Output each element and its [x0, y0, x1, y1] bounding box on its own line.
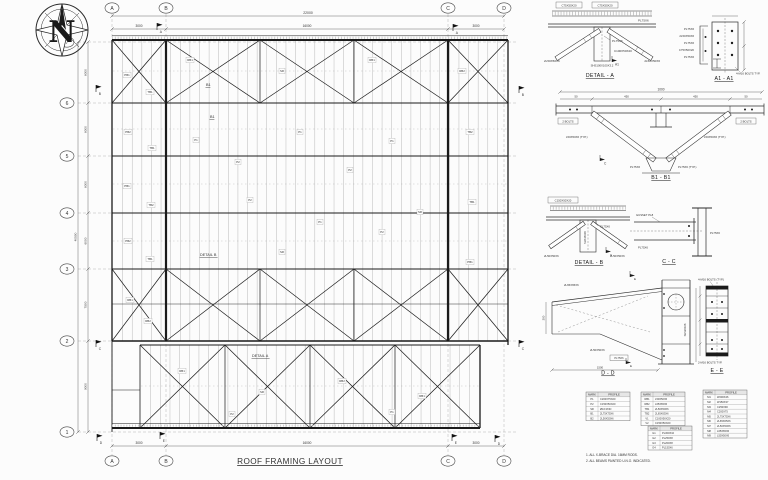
svg-text:RB2: RB2	[644, 402, 650, 406]
detail-cc-caption: C - C	[662, 259, 676, 265]
svg-text:3000: 3000	[472, 24, 479, 28]
svg-text:MARK: MARK	[643, 392, 651, 396]
svg-text:SR: SR	[590, 407, 594, 411]
detail-ee: 4-M16 BOLTS (TYP.) 2-M16 BOLTS TYP. E - …	[698, 278, 728, 375]
svg-text:A: A	[160, 30, 163, 34]
svg-text:P1: P1	[298, 130, 302, 134]
svg-text:RB2: RB2	[339, 379, 345, 383]
svg-text:3000: 3000	[135, 24, 142, 28]
svg-text:SR: SR	[260, 390, 264, 394]
detail-dd-label: 2L50X50X6	[590, 348, 605, 352]
svg-text:D: D	[502, 6, 506, 12]
detail-cc-label: PL75X6	[638, 246, 648, 250]
svg-text:C250X90: C250X90	[717, 405, 728, 409]
svg-text:2L50X50X6: 2L50X50X6	[600, 416, 614, 420]
detail-dd-label: 2L65X65X6	[564, 283, 579, 287]
section-marker: E	[630, 364, 632, 368]
svg-text:C150X50X20: C150X50X20	[600, 402, 616, 406]
detail-dd-label: SHS200X6	[683, 323, 687, 336]
svg-text:P2: P2	[236, 160, 240, 164]
detail-b-label: 2L50X50X6	[610, 254, 625, 258]
detail-a-label: 2L50X50X6	[644, 59, 660, 63]
svg-text:P1: P1	[390, 139, 394, 143]
svg-text:16000: 16000	[303, 24, 312, 28]
svg-text:6000: 6000	[83, 69, 87, 76]
general-note-2: 2. ALL BEAMS PAINTED U.N.O. INDICATED.	[586, 459, 651, 463]
svg-text:SR: SR	[280, 69, 284, 73]
detail-b1-label: PL75X6	[630, 165, 640, 169]
svg-text:DETAIL B: DETAIL B	[200, 253, 217, 257]
svg-text:W150X37: W150X37	[717, 400, 729, 404]
detail-cc-label: PL75X6	[710, 231, 720, 235]
svg-text:C: C	[446, 6, 450, 12]
svg-text:B: B	[99, 92, 102, 96]
svg-text:P1: P1	[194, 138, 198, 142]
svg-text:P2: P2	[590, 402, 594, 406]
member-schedule-tables: MARKPROFILEP1C200X75X20P2C150X50X20SRØ16…	[586, 390, 747, 450]
svg-text:PROFILE: PROFILE	[725, 390, 737, 394]
detail-a1-label: PL75X6	[684, 55, 694, 59]
detail-b: C150X50X20 2L50X50X6 2L50X50X6 PL75X6 SH…	[544, 197, 630, 266]
svg-text:3000: 3000	[135, 441, 142, 445]
svg-text:40500: 40500	[73, 232, 77, 241]
svg-text:A: A	[456, 31, 459, 35]
detail-b-label: SHS150X6	[583, 231, 587, 244]
svg-text:22000: 22000	[303, 11, 313, 15]
svg-text:2L50X50X6: 2L50X50X6	[717, 424, 731, 428]
svg-text:M4: M4	[707, 410, 711, 414]
detail-b-label: 2L50X50X6	[544, 254, 559, 258]
detail-a-label: C75X50X20	[597, 4, 613, 8]
svg-text:E: E	[163, 439, 166, 443]
detail-dd-label: PL75X6	[614, 356, 624, 360]
svg-text:M5: M5	[707, 414, 711, 418]
svg-text:2L65X65X6: 2L65X65X6	[717, 419, 731, 423]
svg-text:P2: P2	[248, 198, 252, 202]
detail-b1-label: L50X50X6 (TYP.)	[704, 135, 726, 139]
general-note-1: 1. ALL X-BRACE DIA. 16MM RODS.	[586, 453, 638, 457]
detail-b1: 1000 50 450 450 50	[556, 87, 764, 181]
detail-a1-caption: A1 - A1	[714, 76, 733, 82]
svg-text:MARK: MARK	[705, 390, 713, 394]
svg-text:B1: B1	[210, 115, 215, 119]
svg-text:PL300X10: PL300X10	[662, 431, 675, 435]
svg-text:6000: 6000	[83, 126, 87, 133]
detail-b1-label: 2 BOLTS	[740, 119, 751, 123]
svg-text:2L75X75X6: 2L75X75X6	[717, 414, 731, 418]
svg-text:D: D	[502, 459, 506, 465]
svg-text:6000: 6000	[83, 181, 87, 188]
detail-ee-note: 4-M16 BOLTS (TYP.)	[698, 278, 724, 282]
svg-text:V2: V2	[645, 421, 649, 425]
svg-text:RB2: RB2	[459, 69, 465, 73]
svg-text:B2: B2	[590, 416, 594, 420]
detail-b1-dim: 50	[744, 94, 748, 98]
svg-text:G4: G4	[652, 446, 656, 450]
svg-text:E: E	[455, 441, 458, 445]
svg-text:PL250X8: PL250X8	[662, 436, 673, 440]
svg-text:B1: B1	[206, 83, 211, 87]
svg-text:TB1: TB1	[149, 146, 155, 150]
detail-a-label: C100X50X20	[614, 49, 632, 53]
svg-text:RB1: RB1	[419, 394, 425, 398]
svg-text:V1: V1	[645, 416, 649, 420]
svg-text:P2: P2	[348, 168, 352, 172]
svg-text:M2: M2	[707, 400, 711, 404]
drawing-sheet: AABBCCDD76543212200030001600030003000160…	[0, 0, 768, 480]
svg-text:2: 2	[66, 339, 69, 345]
svg-text:G2: G2	[652, 436, 656, 440]
detail-a1-note: 4-M16 BOLTS TYP.	[736, 72, 760, 76]
svg-text:PL200X8: PL200X8	[662, 441, 673, 445]
svg-text:PB1: PB1	[124, 184, 130, 188]
section-marker: C	[604, 162, 607, 166]
svg-text:PB1: PB1	[467, 260, 473, 264]
detail-b1-dim: 50	[574, 94, 578, 98]
svg-text:RB2: RB2	[145, 319, 151, 323]
detail-a1-label: PL75X6	[684, 41, 694, 45]
detail-a1-label: PL75X6	[684, 27, 694, 31]
detail-a1: PL75X6 2L50X50X6 PL75X6 C75X50X20 PL75X6…	[679, 16, 761, 82]
north-arrow-compass: N	[36, 4, 88, 56]
detail-ee-caption: E - E	[710, 368, 723, 374]
detail-b1-label: L50X50X6 (TYP.)	[566, 135, 588, 139]
svg-text:B1: B1	[590, 412, 594, 416]
svg-text:TB1: TB1	[645, 407, 650, 411]
svg-text:PB1: PB1	[124, 73, 130, 77]
svg-text:RB1: RB1	[369, 58, 375, 62]
section-marker: A1	[615, 63, 619, 67]
svg-text:PL150X6: PL150X6	[662, 446, 673, 450]
detail-b1-caption: B1 - B1	[651, 175, 670, 181]
svg-text:L65X65X6: L65X65X6	[717, 429, 730, 433]
svg-text:4: 4	[66, 211, 69, 217]
svg-text:TB2: TB2	[467, 130, 473, 134]
svg-text:C200X75X20: C200X75X20	[600, 397, 616, 401]
svg-text:3000: 3000	[472, 441, 479, 445]
detail-a-label: PL75X6	[612, 39, 623, 43]
svg-text:5: 5	[66, 154, 69, 160]
svg-text:L65X65X6: L65X65X6	[655, 402, 668, 406]
svg-text:C150X50X20: C150X50X20	[655, 421, 671, 425]
detail-cc-label: GUSSET PL8	[636, 213, 654, 217]
detail-b1-dim: 1000	[657, 87, 664, 91]
detail-cc: GUSSET PL8 PL75X6 PL75X6 C - C	[630, 208, 720, 265]
svg-text:W200X46: W200X46	[717, 395, 729, 399]
svg-text:RB1: RB1	[127, 298, 133, 302]
detail-b-label: C150X50X20	[555, 198, 572, 202]
detail-b1-dim: 450	[624, 94, 629, 98]
svg-text:M6: M6	[707, 419, 711, 423]
detail-a1-label: C75X50X20	[679, 48, 695, 52]
section-marker: E	[634, 277, 636, 281]
svg-text:PROFILE: PROFILE	[663, 392, 675, 396]
svg-text:RB1: RB1	[644, 397, 650, 401]
detail-b1-label: PL75X6 (TYP.)	[678, 165, 697, 169]
detail-b-label: PL75X6	[600, 225, 610, 229]
svg-text:C100X50X20: C100X50X20	[655, 416, 671, 420]
detail-b1-dim: 450	[693, 94, 698, 98]
detail-a1-label: 2L50X50X6	[679, 34, 694, 38]
svg-text:PB2: PB2	[125, 239, 131, 243]
detail-a-label: PL75X6	[638, 19, 649, 23]
svg-text:TB1: TB1	[469, 200, 475, 204]
detail-a-caption: DETAIL - A	[586, 73, 615, 79]
detail-a: C75X50X20 C75X50X20 PL75X6 2L50X50X6 2L5…	[544, 2, 660, 79]
svg-text:L50X50X6: L50X50X6	[655, 397, 668, 401]
detail-dd-dim: 300	[542, 315, 546, 320]
svg-text:TB1: TB1	[147, 257, 153, 261]
svg-text:L50X50X6: L50X50X6	[717, 434, 730, 438]
svg-text:3: 3	[66, 267, 69, 273]
svg-text:P1: P1	[390, 410, 394, 414]
svg-text:P1: P1	[590, 397, 594, 401]
svg-text:D: D	[498, 442, 501, 446]
svg-text:M7: M7	[707, 424, 711, 428]
detail-dd-caption: D - D	[601, 371, 615, 377]
svg-text:TB1: TB1	[147, 90, 153, 94]
svg-text:G3: G3	[652, 441, 656, 445]
svg-text:C: C	[522, 347, 525, 351]
svg-text:M9: M9	[707, 434, 711, 438]
svg-text:D: D	[100, 441, 103, 445]
svg-text:G1: G1	[652, 431, 656, 435]
roof-framing-plan: AABBCCDD76543212200030001600030003000160…	[60, 3, 525, 466]
svg-text:P2: P2	[380, 230, 384, 234]
svg-text:Ø16 ROD: Ø16 ROD	[600, 407, 612, 411]
svg-text:P1: P1	[318, 220, 322, 224]
svg-text:PB2: PB2	[125, 130, 131, 134]
svg-text:DETAIL A: DETAIL A	[252, 354, 269, 358]
detail-b1-label: 2 BOLTS	[562, 119, 573, 123]
svg-text:1: 1	[66, 430, 69, 436]
svg-text:C: C	[446, 459, 450, 465]
svg-text:7500: 7500	[83, 301, 87, 308]
detail-ee-note: 2-M16 BOLTS TYP.	[698, 361, 722, 365]
svg-text:MARK: MARK	[650, 426, 658, 430]
svg-text:C200X75: C200X75	[717, 410, 728, 414]
detail-dd: 1500 300 2L65X65X6 2L50X50X6 PL75X6 SHS2…	[542, 271, 697, 377]
drawing-canvas: AABBCCDD76543212200030001600030003000160…	[0, 0, 768, 480]
svg-text:9000: 9000	[83, 383, 87, 390]
svg-text:SR: SR	[418, 210, 422, 214]
svg-text:C: C	[99, 347, 102, 351]
svg-text:P2: P2	[230, 412, 234, 416]
svg-text:6000: 6000	[83, 237, 87, 244]
svg-text:B: B	[522, 93, 525, 97]
drawing-title: ROOF FRAMING LAYOUT	[237, 457, 343, 466]
svg-text:M8: M8	[707, 429, 711, 433]
svg-text:SR: SR	[280, 250, 284, 254]
svg-text:PROFILE: PROFILE	[608, 392, 620, 396]
svg-text:TB2: TB2	[148, 203, 154, 207]
svg-text:16000: 16000	[303, 441, 312, 445]
svg-text:PROFILE: PROFILE	[670, 426, 682, 430]
svg-text:RB1: RB1	[187, 58, 193, 62]
svg-text:2L65X65X6: 2L65X65X6	[655, 412, 669, 416]
detail-a-label: SHS100X100X3.2	[591, 64, 614, 68]
svg-text:M3: M3	[707, 405, 711, 409]
svg-text:2L50X50X6: 2L50X50X6	[655, 407, 669, 411]
detail-b-caption: DETAIL - B	[575, 260, 604, 266]
detail-dd-dim: 1500	[597, 365, 604, 369]
detail-a-label: 2L50X50X6	[544, 59, 560, 63]
svg-text:6: 6	[66, 101, 69, 107]
svg-text:2L75X75X6: 2L75X75X6	[600, 412, 614, 416]
svg-text:TB2: TB2	[645, 412, 650, 416]
detail-a-label: C75X50X20	[561, 4, 577, 8]
svg-text:M1: M1	[707, 395, 711, 399]
svg-text:MARK: MARK	[588, 392, 596, 396]
svg-text:RB1: RB1	[179, 369, 185, 373]
